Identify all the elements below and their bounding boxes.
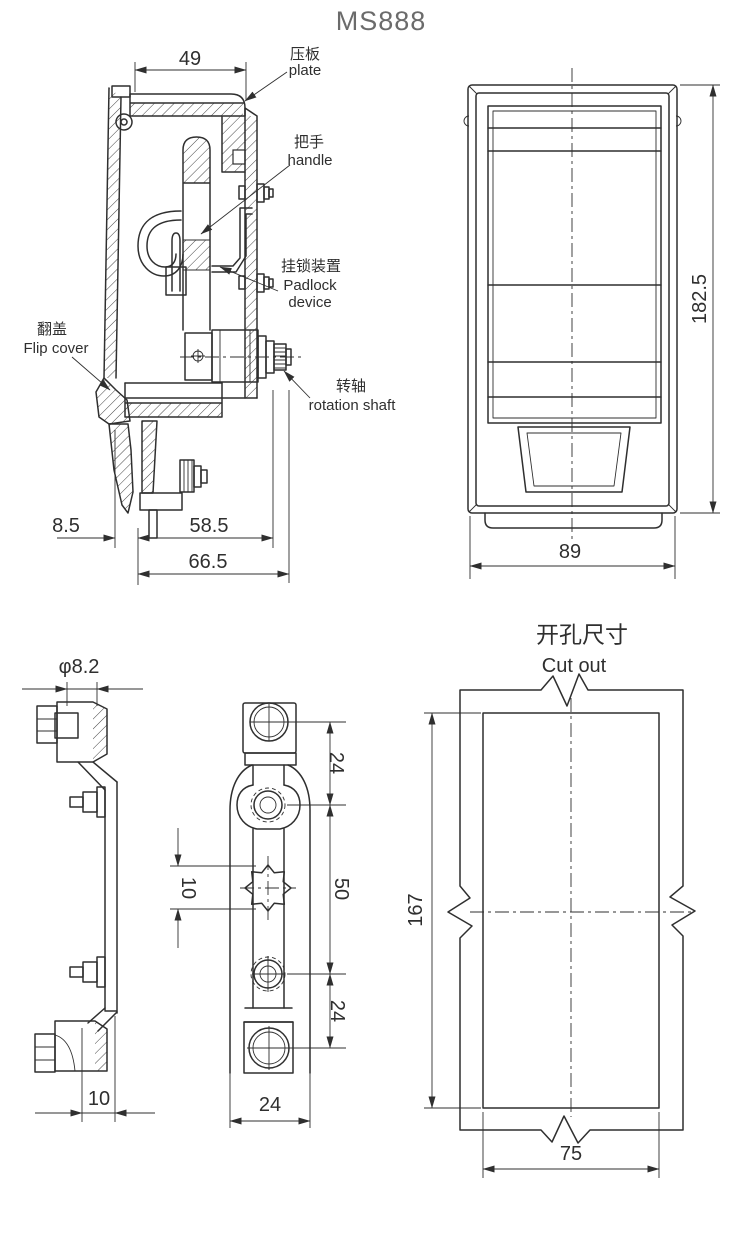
dim-bottom-spacing: 24 <box>326 1000 348 1022</box>
rear-view <box>230 703 310 1073</box>
rear-view-dimensions <box>170 722 346 1128</box>
dim-front-height: 182.5 <box>689 274 711 324</box>
plate-screw-top <box>70 787 105 817</box>
handle-label-zh: 把手 <box>294 135 324 152</box>
dim-cover-offset: 8.5 <box>52 515 80 537</box>
side-hole-notches <box>464 116 681 126</box>
cutout-title-zh: 开孔尺寸 <box>536 622 628 647</box>
front-view-dimensions <box>470 85 720 579</box>
plate-label-en: plate <box>289 63 322 80</box>
padlock-label-zh: 挂锁装置 <box>281 259 341 276</box>
dim-body-width: 24 <box>259 1094 281 1116</box>
dim-center-spacing: 50 <box>330 878 352 900</box>
padlock-label-en1: Padlock <box>283 278 336 295</box>
dim-cutout-width: 75 <box>560 1143 582 1165</box>
dim-overall-depth: 66.5 <box>189 551 228 573</box>
dim-cam-offset: 10 <box>88 1088 110 1110</box>
rotation-shaft-label-zh: 转轴 <box>336 379 366 396</box>
padlock-label-en2: device <box>288 295 331 312</box>
dim-cutout-height: 167 <box>405 893 427 926</box>
dim-shaft-diameter: φ8.2 <box>59 656 100 678</box>
dim-square-hole: 10 <box>177 877 199 899</box>
plate-screw-bottom <box>70 957 105 987</box>
front-view <box>464 68 681 542</box>
handle-label-en: handle <box>287 153 332 170</box>
rotation-shaft-label-en: rotation shaft <box>309 398 396 415</box>
dim-mid-depth: 58.5 <box>190 515 229 537</box>
plate-leader <box>245 72 287 101</box>
dim-top-spacing: 24 <box>325 752 347 774</box>
rotation-shaft-leader <box>284 371 310 398</box>
cutout-title-en: Cut out <box>542 655 606 677</box>
flip-cover-label-en: Flip cover <box>23 341 88 358</box>
page-title: MS888 <box>336 7 427 37</box>
technical-drawing-page: MS888 压板 plate 把手 handle 挂锁装置 Padlock de… <box>0 0 750 1245</box>
drawing-linework <box>0 0 750 1245</box>
dim-plate-width: 49 <box>179 48 201 70</box>
cutout-view <box>448 674 695 1143</box>
dim-front-width: 89 <box>559 541 581 563</box>
panel-outline <box>448 674 695 1143</box>
profile-view <box>22 682 155 1122</box>
side-section-view <box>96 86 302 538</box>
flip-cover-label-zh: 翻盖 <box>37 322 67 339</box>
